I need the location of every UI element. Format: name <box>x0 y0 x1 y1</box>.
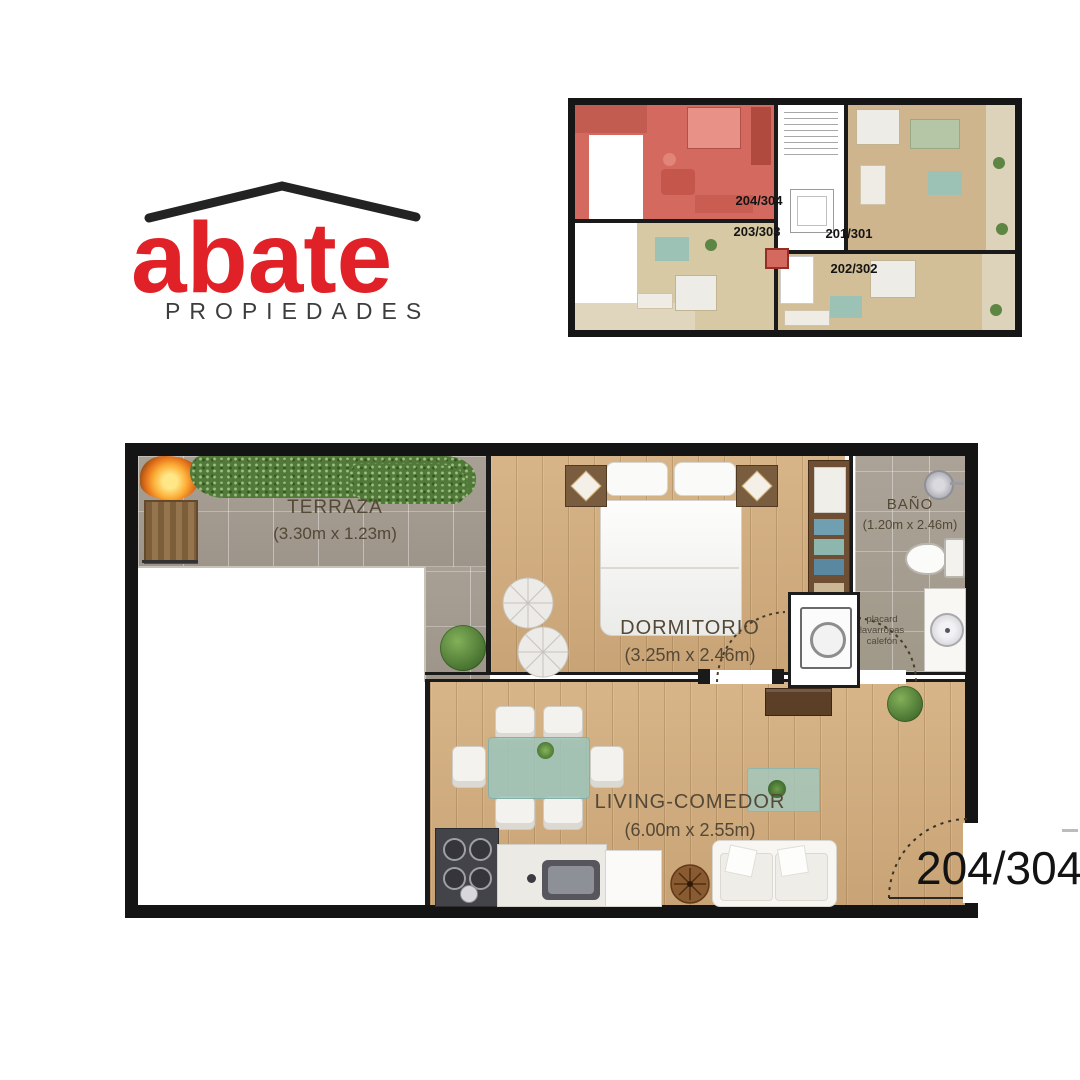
stairs-icon <box>784 109 838 155</box>
faucet-icon <box>527 874 536 883</box>
sofa-pillow-left <box>724 844 757 877</box>
overview-201-plant-1 <box>993 157 1005 169</box>
bed-fold-line <box>601 567 739 569</box>
overview-203-plant <box>705 239 717 251</box>
dining-chair-2 <box>543 706 583 740</box>
wardrobe-towel-3 <box>814 559 844 575</box>
kitchen-sink <box>542 860 600 900</box>
overview-floorplan: 204/304 203/303 201/301 202/302 <box>568 98 1022 337</box>
wall-terraza-dormitorio <box>486 456 491 672</box>
brand-name: abate <box>131 208 392 308</box>
overview-203-sofa <box>637 293 673 309</box>
deck-base-line <box>142 560 198 563</box>
overview-label-203-303: 203/303 <box>721 224 793 239</box>
table-plant-icon <box>537 742 554 759</box>
wardrobe-towel-1 <box>814 519 844 535</box>
terrace-bush-icon <box>440 625 486 671</box>
terraza-dims: (3.30m x 1.23m) <box>255 523 415 544</box>
utility-calefon: calefón <box>852 636 912 647</box>
overview-203-white-cutout <box>575 223 637 303</box>
brand-logo: abate PROPIEDADES <box>125 170 455 330</box>
dorm-door-jamb-left <box>698 669 710 684</box>
stove <box>435 828 499 907</box>
bano-name: BAÑO <box>855 496 965 515</box>
living-plant-icon <box>887 686 923 722</box>
overview-204-pouf <box>663 153 676 166</box>
overview-red-marker <box>765 248 789 269</box>
overview-204-terrace <box>575 105 647 133</box>
fridge-island <box>605 850 662 907</box>
overview-wall-vertical-main <box>774 105 778 330</box>
toilet-bowl-icon <box>905 543 947 575</box>
overview-wall-left-horizontal <box>575 219 774 223</box>
overview-203-bed <box>675 275 717 311</box>
lamp-icon-right <box>741 470 772 501</box>
overview-204-dining-table <box>661 169 695 195</box>
poufs-icon <box>496 572 586 682</box>
terraza-label: TERRAZA (3.30m x 1.23m) <box>255 496 415 544</box>
washing-machine-drum <box>810 622 846 658</box>
overview-201-bed-1 <box>856 109 900 145</box>
nightstand-left <box>565 465 607 507</box>
utility-placard: placard <box>852 614 912 625</box>
wall-living-left <box>425 682 430 905</box>
overview-202-sofa <box>784 310 830 326</box>
washing-machine-icon <box>800 607 852 669</box>
overview-202-table <box>830 296 862 318</box>
unit-floorplan-inner: TERRAZA (3.30m x 1.23m) <box>138 456 965 905</box>
overview-floorplan-inner: 204/304 203/303 201/301 202/302 <box>575 105 1015 330</box>
overview-201-plant-2 <box>996 223 1008 235</box>
overview-label-201-301: 201/301 <box>813 226 885 241</box>
bano-label: BAÑO (1.20m x 2.46m) <box>855 496 965 533</box>
dining-chair-5 <box>452 746 486 788</box>
vanity <box>924 588 966 672</box>
cutout-right-edge <box>424 567 426 682</box>
laundry-nook <box>788 592 860 688</box>
terraza-name: TERRAZA <box>255 496 415 520</box>
dormitorio-dims: (3.25m x 2.46m) <box>600 644 780 667</box>
toilet-tank <box>944 538 965 578</box>
wardrobe-linens <box>814 467 846 513</box>
lamp-icon-left <box>570 470 601 501</box>
overview-201-table <box>928 171 962 195</box>
sink-basin <box>548 866 594 894</box>
dining-chair-1 <box>495 706 535 740</box>
overview-203-table <box>655 237 689 261</box>
dormitorio-name: DORMITORIO <box>600 616 780 641</box>
elevator-inner <box>797 196 827 226</box>
burner-1 <box>443 838 466 861</box>
kettle-icon <box>460 885 478 903</box>
cutout-top-edge <box>138 566 425 568</box>
dimension-tick <box>1062 829 1078 832</box>
bed-pillow-right <box>674 462 736 496</box>
sink-icon <box>930 613 964 647</box>
dormitorio-label: DORMITORIO (3.25m x 2.46m) <box>600 616 780 667</box>
overview-202-terrace <box>982 254 1015 330</box>
overview-204-white-cutout <box>589 135 643 219</box>
overview-wall-right-horizontal <box>774 250 1015 254</box>
burner-2 <box>469 838 492 861</box>
overview-201-sofa <box>860 165 886 205</box>
nightstand-right <box>736 465 778 507</box>
dining-table <box>488 737 590 799</box>
living-dims: (6.00m x 2.55m) <box>590 819 790 842</box>
living-label: LIVING-COMEDOR (6.00m x 2.55m) <box>590 790 790 842</box>
wood-deck-icon <box>144 500 198 564</box>
brand-tagline: PROPIEDADES <box>165 298 430 325</box>
overview-unit-202-302 <box>778 254 1015 330</box>
wardrobe-towel-2 <box>814 539 844 555</box>
overview-label-204-304: 204/304 <box>723 193 795 208</box>
living-name: LIVING-COMEDOR <box>590 790 790 815</box>
unit-floorplan: TERRAZA (3.30m x 1.23m) <box>125 443 978 918</box>
sofa-pillow-right <box>777 845 809 877</box>
overview-204-closet <box>751 107 771 165</box>
overview-unit-203-303 <box>575 223 774 330</box>
shower-arm <box>950 482 964 485</box>
utility-lavarropas: lavarropas <box>852 625 912 636</box>
overview-204-bed <box>687 107 741 149</box>
bano-dims: (1.20m x 2.46m) <box>855 517 965 533</box>
dining-chair-4 <box>543 796 583 830</box>
round-side-table <box>670 864 710 904</box>
overview-label-202-302: 202/302 <box>815 261 893 276</box>
utility-note: placard lavarropas calefón <box>852 614 912 647</box>
console-shelf <box>765 688 832 716</box>
dining-chair-6 <box>590 746 624 788</box>
dining-chair-3 <box>495 796 535 830</box>
overview-201-bed-2 <box>910 119 960 149</box>
overview-202-plant <box>990 304 1002 316</box>
bed-pillow-left <box>606 462 668 496</box>
real-estate-flyer: abate PROPIEDADES <box>0 0 1080 1080</box>
unit-number: 204/304 <box>916 841 1080 895</box>
sink-drain <box>945 628 950 633</box>
sofa <box>712 840 837 907</box>
